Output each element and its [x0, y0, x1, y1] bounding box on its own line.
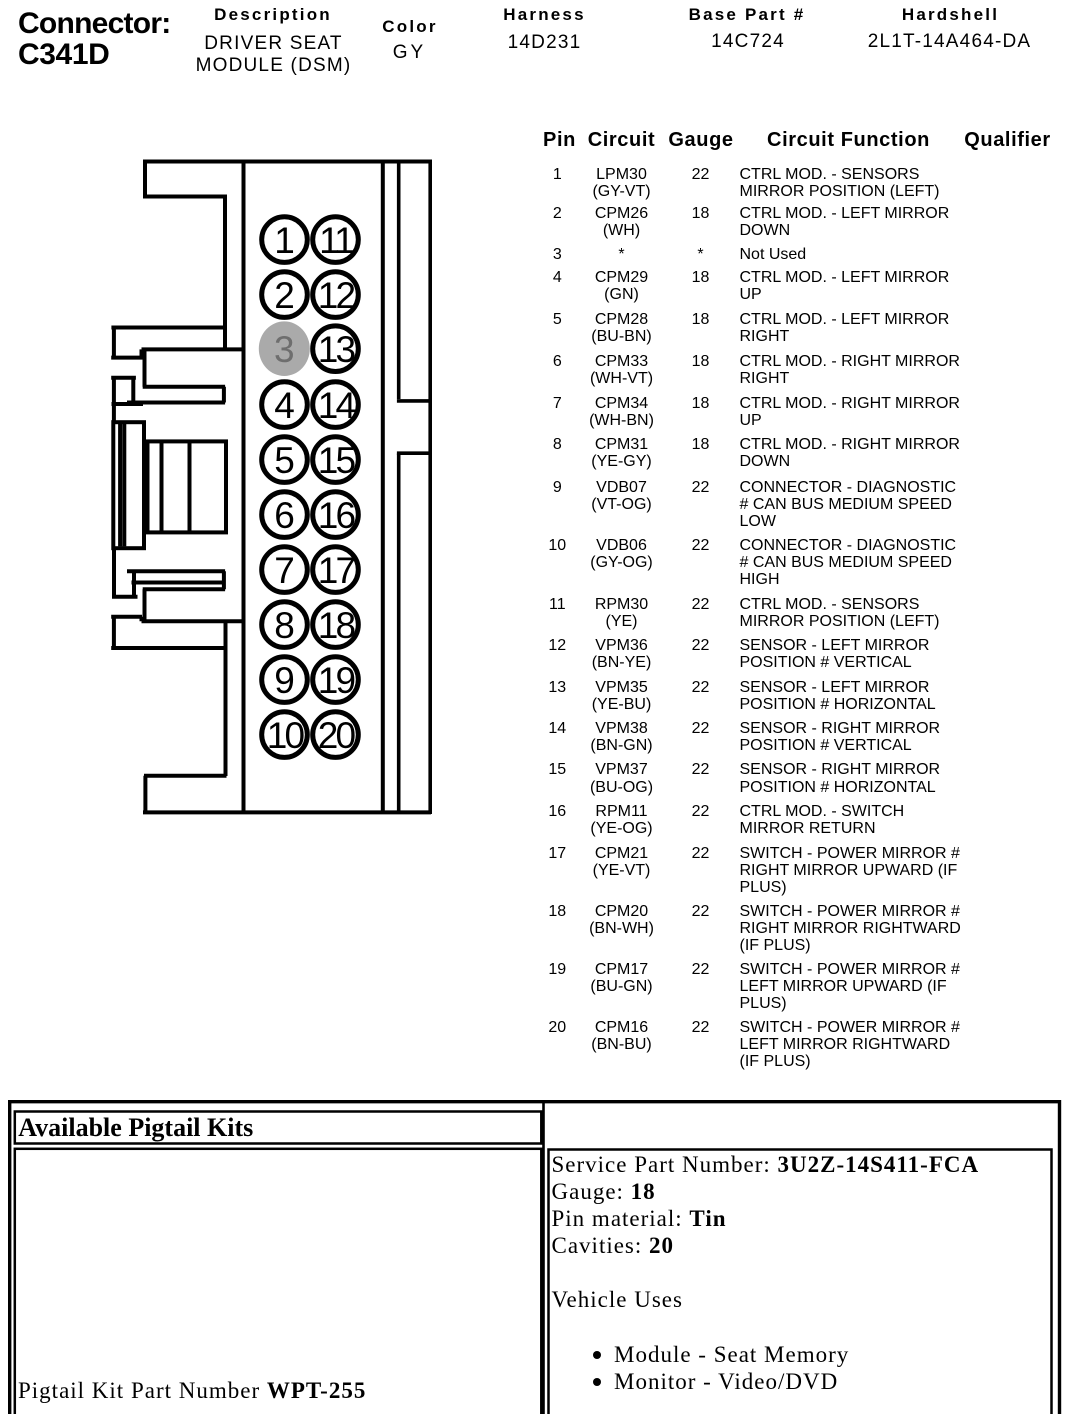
- svg-text:19: 19: [318, 660, 355, 701]
- svg-text:11: 11: [319, 220, 353, 261]
- svg-text:15: 15: [318, 440, 356, 481]
- svg-text:12: 12: [318, 275, 355, 316]
- svg-text:1: 1: [274, 220, 295, 261]
- svg-text:8: 8: [274, 605, 295, 646]
- svg-text:2: 2: [274, 275, 295, 316]
- svg-text:14: 14: [318, 385, 356, 426]
- svg-text:4: 4: [274, 385, 295, 426]
- svg-text:18: 18: [318, 605, 355, 646]
- svg-text:13: 13: [318, 329, 355, 370]
- svg-text:5: 5: [274, 440, 295, 481]
- svg-text:7: 7: [274, 550, 295, 591]
- svg-text:6: 6: [274, 495, 295, 536]
- svg-text:17: 17: [318, 550, 355, 591]
- svg-text:10: 10: [267, 715, 305, 756]
- svg-text:3: 3: [274, 329, 295, 370]
- svg-text:16: 16: [318, 495, 355, 536]
- svg-text:20: 20: [318, 715, 356, 756]
- svg-text:9: 9: [274, 660, 295, 701]
